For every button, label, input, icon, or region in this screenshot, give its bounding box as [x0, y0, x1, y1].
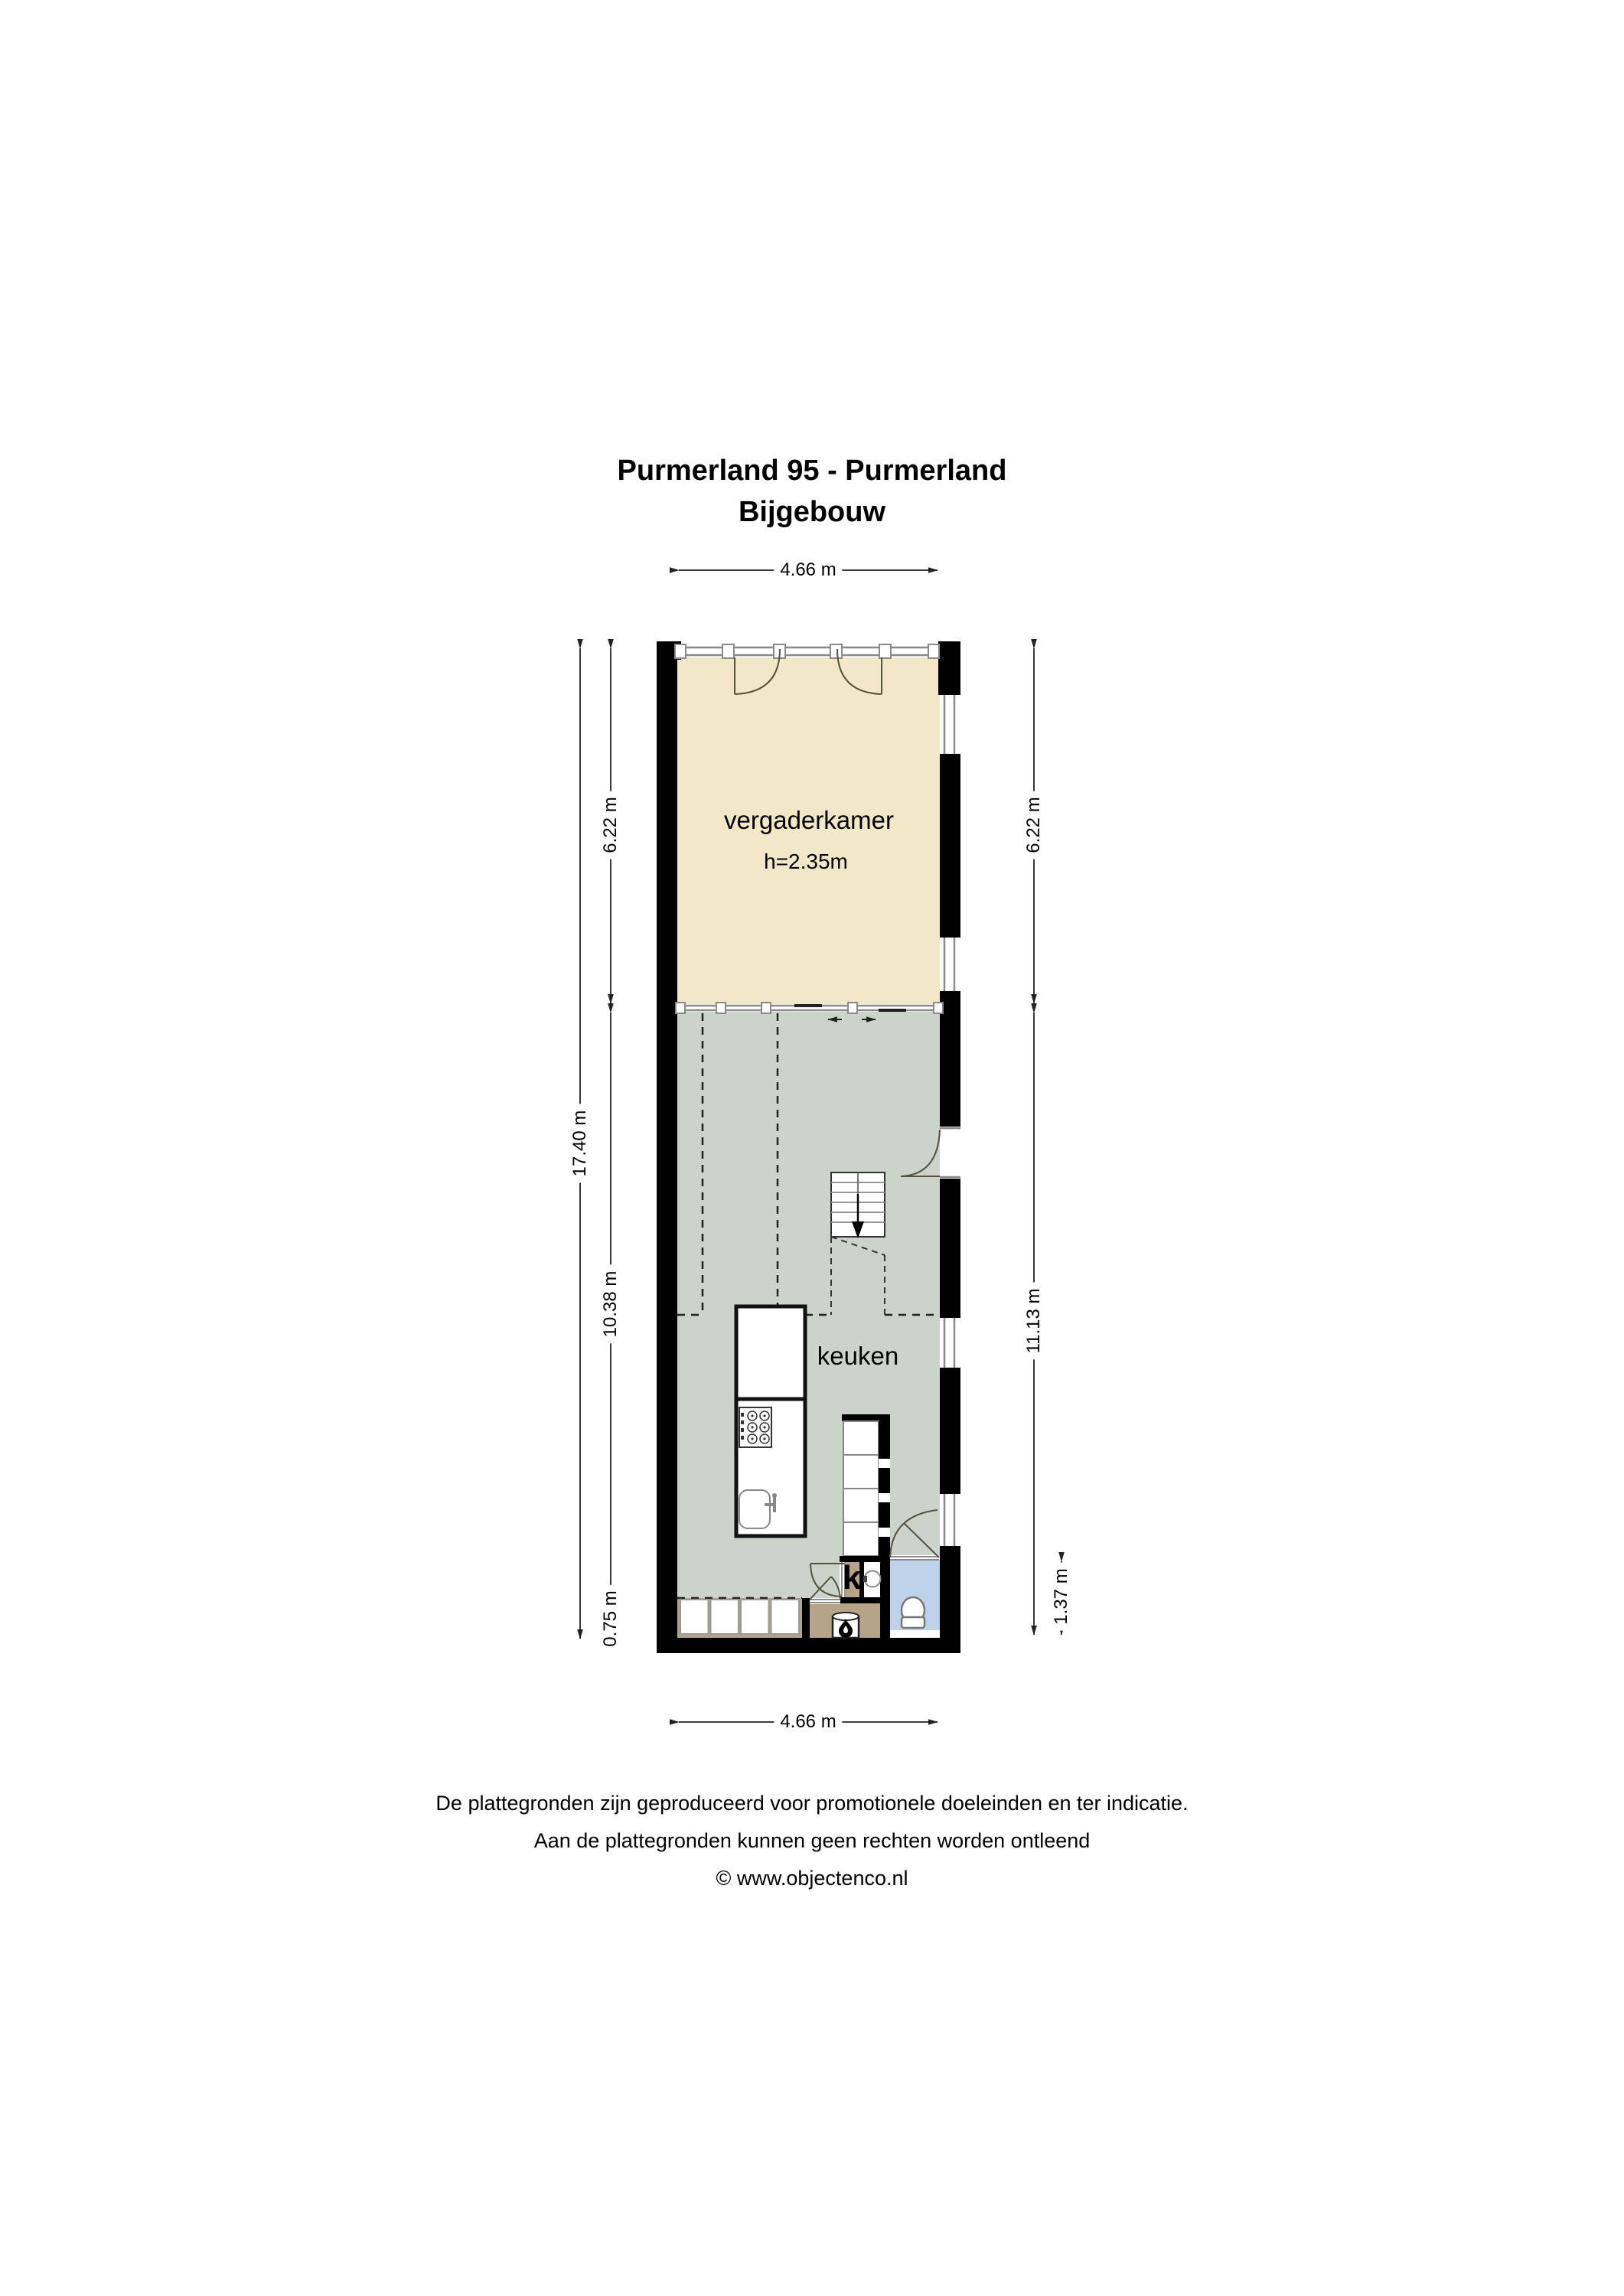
kitchen-counter-column [842, 1414, 890, 1556]
floorplan-drawing [0, 0, 1624, 2296]
window-3 [940, 1318, 960, 1368]
window-1 [940, 695, 960, 754]
dim-label-left-bottom: 0.75 m [600, 1584, 621, 1652]
round-basin-icon [863, 1571, 881, 1587]
floorplan-page: Purmerland 95 - Purmerland Bijgebouw 4.6… [0, 0, 1624, 2296]
window-4 [940, 1494, 960, 1546]
right-wall-seg5 [940, 1546, 960, 1653]
toilet-icon [902, 1597, 925, 1628]
bottom-wall [657, 1638, 960, 1653]
dim-label-right-bottom: 1.37 m [1051, 1562, 1072, 1630]
room-label-vergaderkamer: vergaderkamer [724, 806, 894, 835]
dim-label-bottom: 4.66 m [774, 1711, 842, 1733]
room-label-keuken: keuken [817, 1342, 898, 1371]
disclaimer-line3: © www.objectenco.nl [0, 1860, 1624, 1897]
gas-hob-icon [739, 1407, 771, 1447]
room-label-closet: k [843, 1559, 861, 1597]
left-wall [657, 641, 677, 1653]
wood-stove [833, 1613, 859, 1638]
dim-label-left-total: 17.40 m [569, 1104, 591, 1183]
disclaimer-line2: Aan de plattegronden kunnen geen rechten… [0, 1822, 1624, 1860]
page-title: Purmerland 95 - Purmerland Bijgebouw [0, 450, 1624, 533]
disclaimer-line1: De plattegronden zijn geproduceerd voor … [0, 1785, 1624, 1822]
right-wall-seg1 [940, 754, 960, 938]
right-wall-seg4 [940, 1368, 960, 1494]
dim-label-left-upper: 6.22 m [600, 791, 621, 859]
dim-label-top: 4.66 m [774, 559, 842, 581]
room-floors [677, 654, 940, 1639]
kitchen-island [736, 1306, 805, 1536]
keuken-floor [677, 1011, 940, 1556]
title-line1: Purmerland 95 - Purmerland [0, 450, 1624, 491]
title-line2: Bijgebouw [0, 491, 1624, 533]
disclaimer: De plattegronden zijn geproduceerd voor … [0, 1785, 1624, 1897]
keuken-floor-lower [677, 1556, 840, 1598]
right-wall-seg3 [940, 1179, 960, 1318]
window-2 [940, 938, 960, 991]
dim-label-left-middle: 10.38 m [600, 1265, 621, 1344]
top-right-corner [938, 641, 960, 695]
room-label-ceiling-height: h=2.35m [764, 850, 848, 874]
dim-label-right-middle: 11.13 m [1023, 1283, 1045, 1360]
dim-label-right-upper: 6.22 m [1023, 791, 1045, 859]
